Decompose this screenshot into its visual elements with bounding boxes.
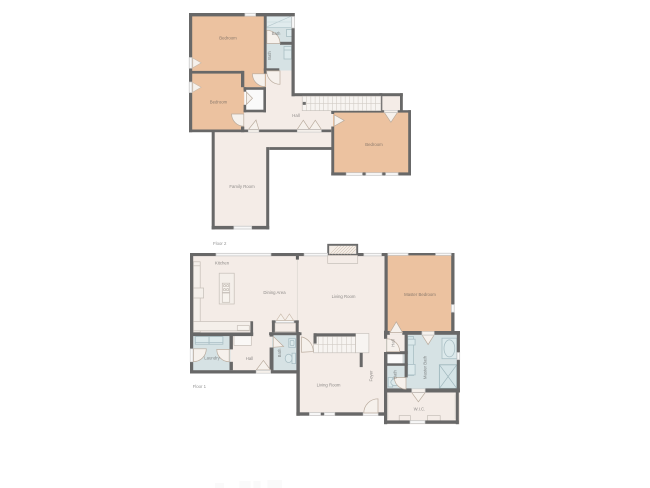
svg-text:Bath: Bath	[277, 348, 282, 357]
svg-text:Living Room: Living Room	[317, 383, 341, 388]
svg-text:Bedroom: Bedroom	[210, 100, 228, 105]
svg-text:Bath: Bath	[272, 31, 281, 36]
svg-text:Floor 1: Floor 1	[193, 384, 207, 389]
svg-text:Family Room: Family Room	[229, 184, 255, 189]
svg-text:Master Bedroom: Master Bedroom	[404, 292, 436, 297]
svg-text:Bath: Bath	[393, 369, 398, 378]
svg-text:Floor 2: Floor 2	[213, 241, 227, 246]
svg-text:Master Bath: Master Bath	[423, 355, 428, 379]
svg-text:Living Room: Living Room	[332, 294, 356, 299]
svg-text:W.I.C.: W.I.C.	[414, 407, 426, 412]
svg-text:Dining Area: Dining Area	[263, 290, 286, 295]
svg-text:Kitchen: Kitchen	[215, 261, 230, 266]
svg-text:Hall: Hall	[391, 339, 396, 346]
svg-text:Hall: Hall	[292, 113, 299, 118]
svg-text:Laundry: Laundry	[204, 356, 220, 361]
svg-text:Hall: Hall	[246, 356, 253, 361]
svg-text:Foyer: Foyer	[369, 370, 374, 382]
svg-text:Bath: Bath	[267, 50, 272, 59]
svg-text:Bedroom: Bedroom	[365, 142, 383, 147]
svg-text:Bedroom: Bedroom	[219, 36, 237, 41]
